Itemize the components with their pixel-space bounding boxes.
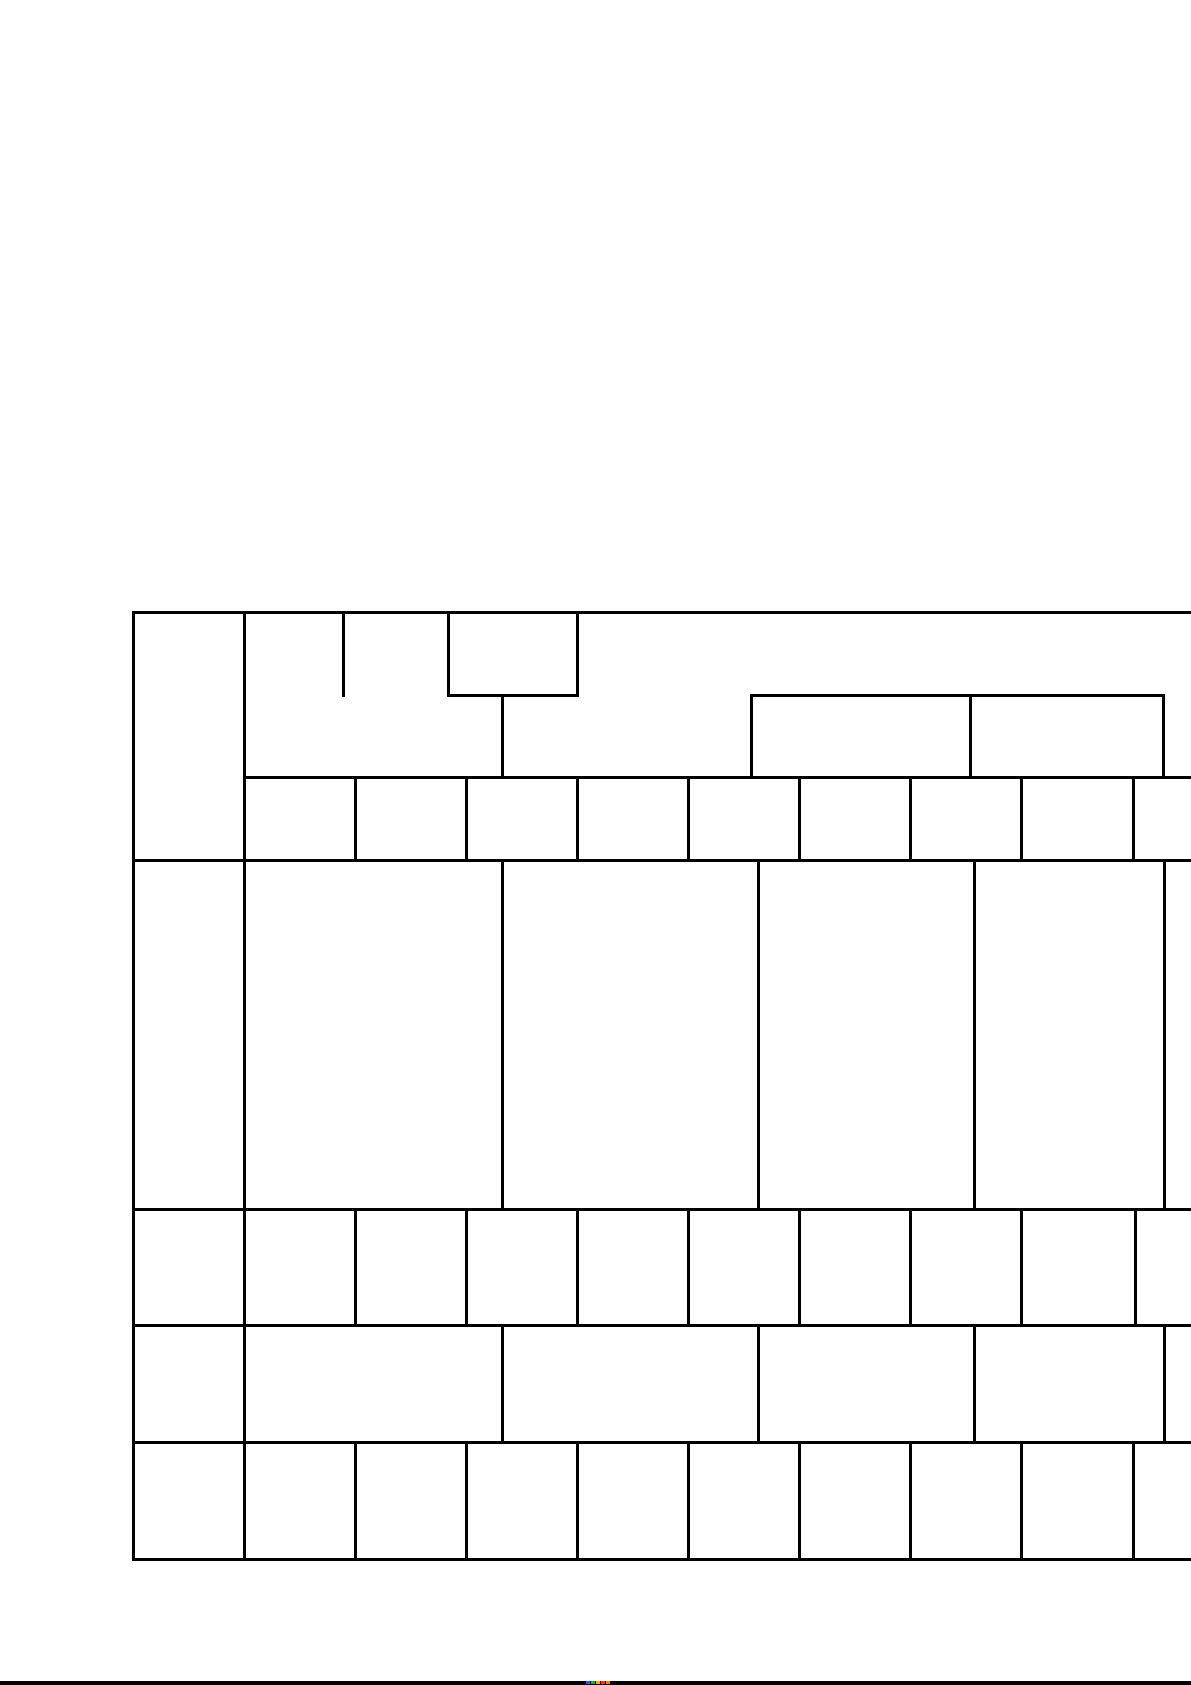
table-vertical-line xyxy=(1163,1324,1166,1444)
table-vertical-line xyxy=(1020,776,1023,862)
table-vertical-line xyxy=(798,1208,801,1327)
table-vertical-line xyxy=(757,859,760,1211)
table-vertical-line xyxy=(687,776,690,862)
table-vertical-line xyxy=(1020,1208,1023,1327)
table-vertical-line xyxy=(501,859,504,1211)
table-vertical-line xyxy=(354,1208,357,1327)
table-vertical-line xyxy=(757,1324,760,1444)
table-horizontal-line xyxy=(243,776,1191,779)
table-vertical-line xyxy=(1134,1208,1137,1327)
table-vertical-line xyxy=(973,859,976,1211)
table-vertical-line xyxy=(750,694,753,779)
table-horizontal-line xyxy=(132,1558,1191,1561)
table-vertical-line xyxy=(354,776,357,862)
table-vertical-line xyxy=(1132,776,1135,862)
table-vertical-line xyxy=(798,776,801,862)
table-horizontal-line xyxy=(132,1324,1191,1327)
table-vertical-line xyxy=(798,1441,801,1561)
table-horizontal-line xyxy=(132,1441,1191,1444)
table-vertical-line xyxy=(1163,859,1166,1211)
table-horizontal-line xyxy=(132,859,1191,862)
table-vertical-line xyxy=(132,611,135,1561)
table-vertical-line xyxy=(1020,1441,1023,1561)
table-vertical-line xyxy=(576,611,579,697)
table-vertical-line xyxy=(576,1208,579,1327)
table-vertical-line xyxy=(501,1324,504,1444)
table-horizontal-line xyxy=(447,694,579,697)
table-vertical-line xyxy=(465,1441,468,1561)
table-vertical-line xyxy=(909,776,912,862)
table-horizontal-line xyxy=(750,694,1165,697)
table-vertical-line xyxy=(909,1208,912,1327)
table-horizontal-line xyxy=(132,1208,1191,1211)
table-vertical-line xyxy=(342,611,345,697)
table-vertical-line xyxy=(969,694,972,779)
table-vertical-line xyxy=(243,611,246,1561)
table-vertical-line xyxy=(447,611,450,697)
table-vertical-line xyxy=(687,1441,690,1561)
window-bottom-bar xyxy=(0,1681,1191,1685)
table-vertical-line xyxy=(1162,694,1165,779)
table-vertical-line xyxy=(354,1441,357,1561)
document-page xyxy=(0,0,1191,1685)
table-vertical-line xyxy=(973,1324,976,1444)
taskbar-color-pixel xyxy=(586,1681,590,1684)
taskbar-color-pixel xyxy=(601,1681,605,1684)
table-horizontal-line xyxy=(132,611,1191,614)
table-vertical-line xyxy=(1132,1441,1135,1561)
taskbar-color-pixel xyxy=(591,1681,595,1684)
table-vertical-line xyxy=(576,1441,579,1561)
table-vertical-line xyxy=(576,776,579,862)
taskbar-color-pixel xyxy=(606,1681,610,1684)
table-vertical-line xyxy=(909,1441,912,1561)
taskbar-color-pixel xyxy=(596,1681,600,1684)
table-vertical-line xyxy=(501,694,504,779)
table-vertical-line xyxy=(465,1208,468,1327)
table-vertical-line xyxy=(687,1208,690,1327)
table-vertical-line xyxy=(465,776,468,862)
